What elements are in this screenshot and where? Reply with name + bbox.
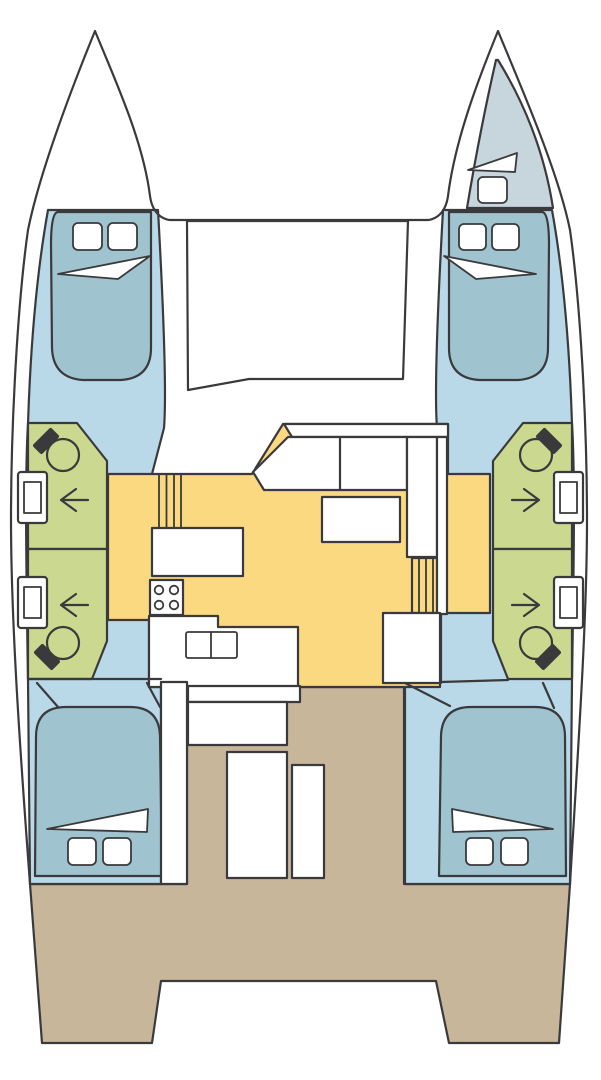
- pillow: [492, 224, 519, 250]
- port-walkway-strip: [161, 682, 187, 884]
- pillow: [108, 223, 137, 250]
- salon-wall-strip: [437, 437, 447, 614]
- pillow: [478, 177, 507, 203]
- cockpit-bench: [292, 765, 324, 878]
- pillow: [501, 838, 528, 865]
- pillow: [103, 838, 131, 865]
- washbasin: [554, 472, 583, 523]
- washbasin: [18, 472, 47, 523]
- pillow: [68, 838, 96, 865]
- washbasin: [554, 577, 583, 628]
- dinette-table: [322, 497, 400, 542]
- pillow: [466, 838, 493, 865]
- foredeck-locker: [187, 221, 408, 390]
- galley-sink: [186, 632, 237, 658]
- sofa-side-seat: [407, 437, 437, 557]
- pillow: [459, 224, 486, 250]
- pillow: [73, 223, 102, 250]
- galley-stove: [150, 580, 183, 615]
- stair-landing: [383, 613, 440, 683]
- cockpit-bench-back: [188, 686, 300, 702]
- galley-cabinet: [152, 528, 243, 576]
- catamaran-floor-plan: [0, 0, 601, 1080]
- washbasin: [18, 577, 47, 628]
- port-aft-cabin-bed: [35, 707, 162, 876]
- cockpit-bench: [188, 702, 287, 745]
- cockpit-table: [227, 752, 287, 878]
- sofa-back-band: [284, 424, 448, 437]
